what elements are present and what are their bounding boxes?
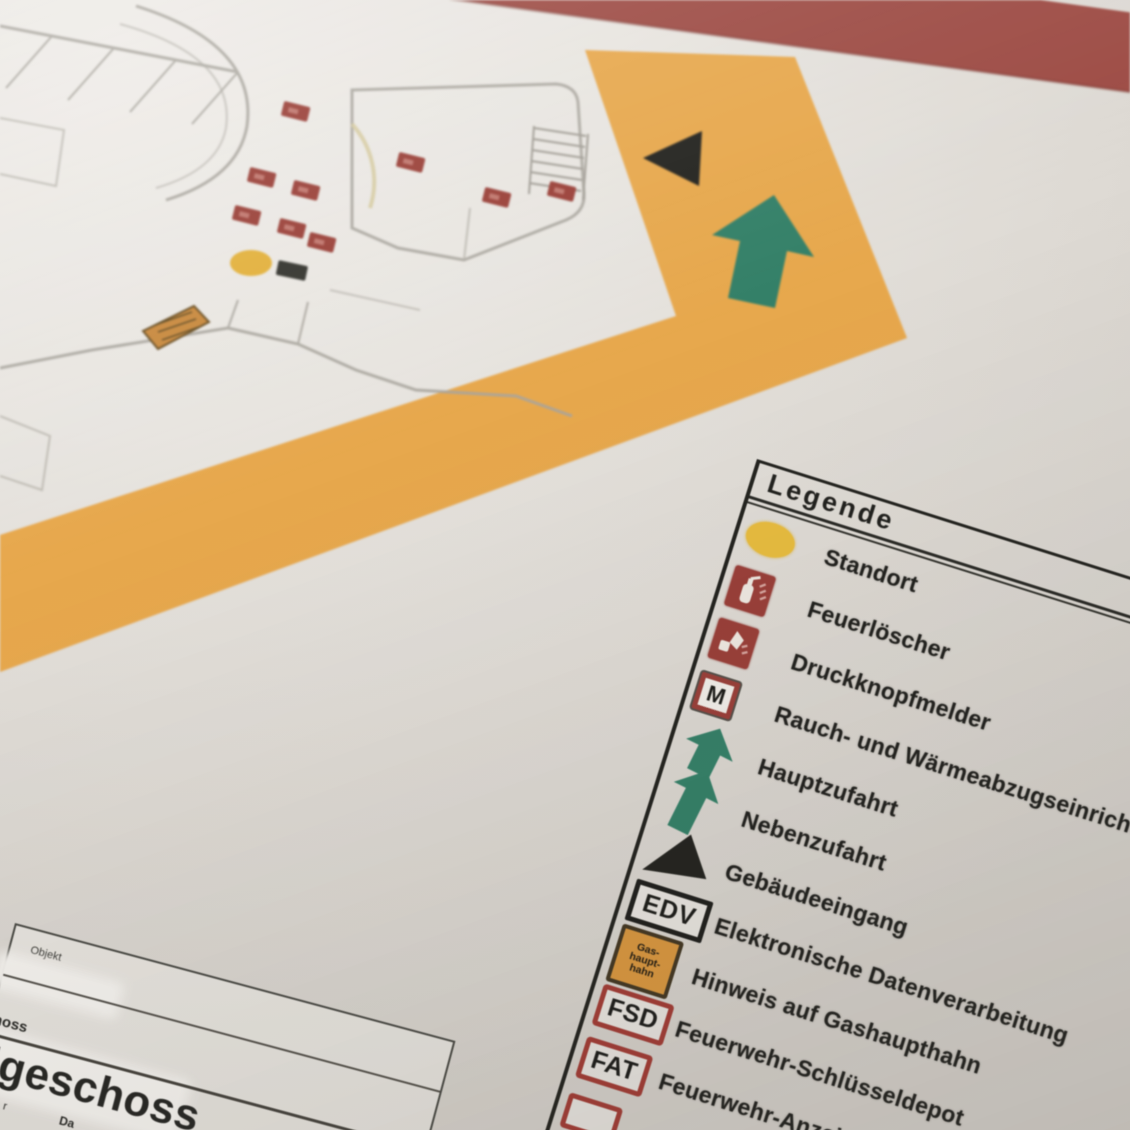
tiny-text-fragment: r — [2, 1100, 9, 1113]
gas-main-diamond — [143, 306, 209, 349]
fire-plan-photo: Legende Standort Feuerlöscher — [0, 0, 1130, 1130]
redacted-object-name — [0, 950, 125, 1020]
dark-symbol — [276, 260, 308, 281]
location-ellipse-icon — [742, 516, 800, 563]
fire-extinguisher-icon — [724, 564, 777, 617]
date-field-fragment: Da — [58, 1113, 76, 1130]
fire-safety-symbols — [232, 101, 577, 253]
partial-red-box-icon — [559, 1092, 623, 1130]
door-arc — [352, 124, 374, 208]
push-button-alarm-icon — [707, 617, 760, 670]
smoke-heat-vent-icon: M — [691, 671, 741, 719]
standort-marker — [230, 250, 272, 276]
